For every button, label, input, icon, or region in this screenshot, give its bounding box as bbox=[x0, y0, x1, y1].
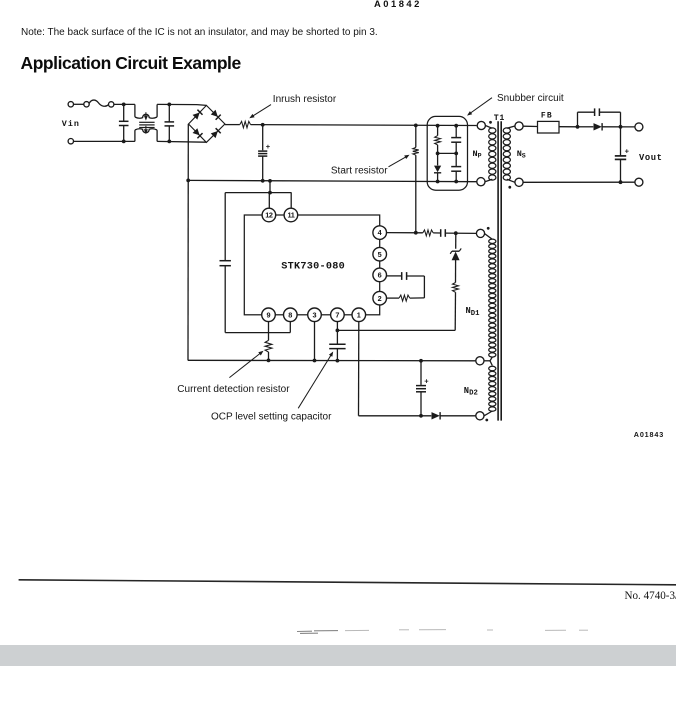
svg-text:Current detection resistor: Current detection resistor bbox=[177, 384, 290, 395]
svg-text:T1: T1 bbox=[494, 114, 505, 123]
svg-text:ND1: ND1 bbox=[466, 306, 481, 318]
svg-text:Snubber circuit: Snubber circuit bbox=[497, 93, 564, 104]
svg-text:3: 3 bbox=[312, 310, 316, 319]
svg-text:A01843: A01843 bbox=[634, 430, 664, 439]
svg-text:+: + bbox=[424, 377, 429, 386]
svg-text:NS: NS bbox=[517, 149, 526, 160]
svg-text:9: 9 bbox=[266, 310, 270, 319]
svg-text:6: 6 bbox=[378, 271, 382, 280]
svg-text:2: 2 bbox=[378, 294, 382, 303]
svg-text:5: 5 bbox=[378, 250, 382, 259]
svg-text:Vin: Vin bbox=[62, 119, 80, 129]
svg-text:1: 1 bbox=[357, 310, 361, 319]
svg-text:7: 7 bbox=[335, 310, 339, 319]
svg-text:Vout: Vout bbox=[639, 153, 663, 163]
svg-text:8: 8 bbox=[288, 310, 292, 319]
svg-text:FB: FB bbox=[541, 111, 553, 120]
svg-text:12: 12 bbox=[265, 211, 273, 220]
svg-text:Start resistor: Start resistor bbox=[331, 165, 388, 176]
svg-text:NP: NP bbox=[473, 149, 482, 160]
svg-text:+: + bbox=[266, 142, 271, 151]
svg-text:ND2: ND2 bbox=[464, 386, 478, 398]
svg-text:11: 11 bbox=[287, 211, 294, 220]
svg-text:STK730-080: STK730-080 bbox=[281, 262, 345, 273]
svg-text:+: + bbox=[625, 147, 630, 156]
svg-text:Inrush resistor: Inrush resistor bbox=[273, 94, 337, 105]
svg-text:OCP level setting capacitor: OCP level setting capacitor bbox=[211, 411, 332, 422]
